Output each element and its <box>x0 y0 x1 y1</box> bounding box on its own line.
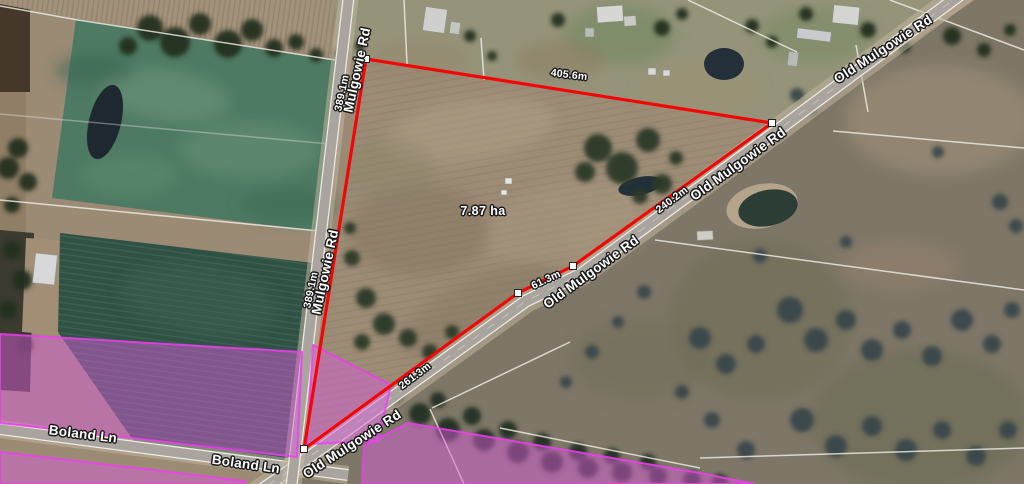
boundary-vertex-mid1[interactable] <box>570 263 577 270</box>
boundary-vertex-nw[interactable] <box>363 56 370 63</box>
satellite-map <box>0 0 1024 484</box>
boundary-vertex-s[interactable] <box>301 446 308 453</box>
boundary-vertex-mid2[interactable] <box>515 290 522 297</box>
map-canvas[interactable]: Mulgowie Rd Mulgowie Rd Old Mulgowie Rd … <box>0 0 1024 484</box>
boundary-vertex-e[interactable] <box>769 120 776 127</box>
